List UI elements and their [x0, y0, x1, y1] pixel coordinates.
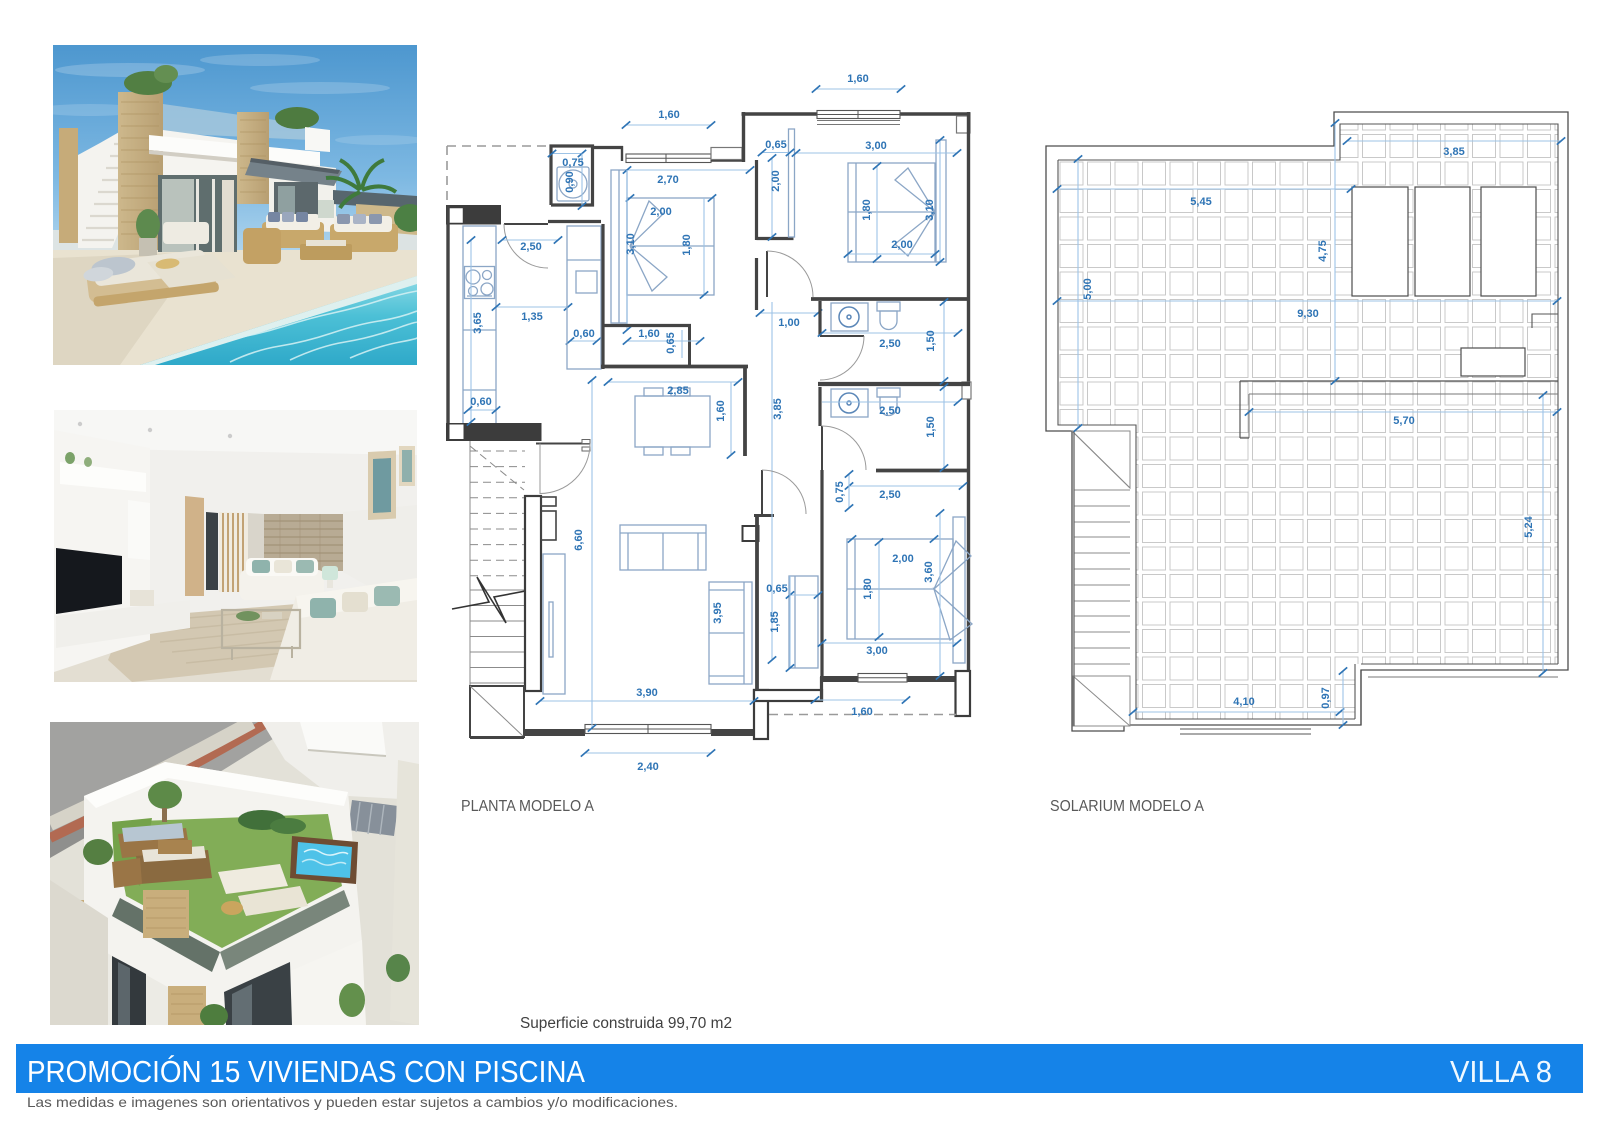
svg-text:2,00: 2,00: [892, 553, 913, 565]
svg-text:0,60: 0,60: [470, 396, 491, 408]
svg-text:2,00: 2,00: [770, 170, 782, 191]
svg-text:PLANTA MODELO A: PLANTA MODELO A: [461, 798, 594, 815]
svg-text:3,00: 3,00: [865, 140, 886, 152]
svg-text:5,45: 5,45: [1190, 196, 1211, 208]
svg-text:2,85: 2,85: [667, 385, 688, 397]
svg-text:3,60: 3,60: [923, 561, 935, 582]
svg-text:6,60: 6,60: [573, 529, 585, 550]
svg-text:0,75: 0,75: [834, 481, 846, 502]
svg-text:1,60: 1,60: [847, 73, 868, 85]
svg-text:2,50: 2,50: [879, 489, 900, 501]
svg-text:3,95: 3,95: [712, 602, 724, 623]
svg-text:4,10: 4,10: [1233, 696, 1254, 708]
svg-text:1,80: 1,80: [681, 234, 693, 255]
svg-text:1,00: 1,00: [778, 317, 799, 329]
svg-text:1,60: 1,60: [715, 400, 727, 421]
svg-text:1,80: 1,80: [861, 199, 873, 220]
svg-text:3,85: 3,85: [772, 398, 784, 419]
svg-text:5,24: 5,24: [1523, 515, 1535, 537]
svg-text:2,50: 2,50: [520, 241, 541, 253]
svg-text:3,90: 3,90: [636, 687, 657, 699]
svg-text:3,65: 3,65: [472, 312, 484, 333]
svg-text:1,35: 1,35: [521, 311, 542, 323]
svg-text:0,65: 0,65: [766, 583, 787, 595]
svg-text:1,50: 1,50: [925, 416, 937, 437]
svg-text:0,60: 0,60: [573, 328, 594, 340]
svg-text:2,00: 2,00: [650, 206, 671, 218]
svg-text:SOLARIUM MODELO A: SOLARIUM MODELO A: [1050, 798, 1204, 815]
svg-text:5,00: 5,00: [1082, 278, 1094, 299]
svg-text:0,90: 0,90: [564, 171, 576, 192]
svg-text:1,80: 1,80: [862, 578, 874, 599]
svg-text:2,00: 2,00: [891, 239, 912, 251]
svg-text:1,60: 1,60: [638, 328, 659, 340]
svg-text:VILLA 8: VILLA 8: [1450, 1054, 1552, 1089]
svg-text:3,10: 3,10: [924, 199, 936, 220]
svg-text:3,85: 3,85: [1443, 146, 1464, 158]
svg-text:4,75: 4,75: [1317, 240, 1329, 261]
svg-text:5,70: 5,70: [1393, 415, 1414, 427]
svg-text:2,50: 2,50: [879, 405, 900, 417]
svg-text:0,65: 0,65: [765, 139, 786, 151]
svg-text:0,75: 0,75: [562, 157, 583, 169]
svg-text:1,60: 1,60: [658, 109, 679, 121]
svg-text:3,00: 3,00: [866, 645, 887, 657]
svg-text:2,40: 2,40: [637, 761, 658, 773]
svg-text:Las medidas e imagenes son ori: Las medidas e imagenes son orientativos …: [27, 1094, 678, 1110]
svg-text:2,50: 2,50: [879, 338, 900, 350]
svg-text:9,30: 9,30: [1297, 308, 1318, 320]
svg-text:1,50: 1,50: [925, 330, 937, 351]
svg-text:Superficie construida 99,70 m2: Superficie construida 99,70 m2: [520, 1015, 732, 1032]
svg-text:0,97: 0,97: [1320, 687, 1332, 708]
svg-text:3,10: 3,10: [625, 233, 637, 254]
svg-text:0,65: 0,65: [665, 332, 677, 353]
svg-text:PROMOCIÓN 15 VIVIENDAS CON PIS: PROMOCIÓN 15 VIVIENDAS CON PISCINA: [27, 1054, 585, 1089]
svg-text:1,60: 1,60: [851, 706, 872, 718]
svg-text:2,70: 2,70: [657, 174, 678, 186]
svg-text:1,85: 1,85: [769, 611, 781, 632]
